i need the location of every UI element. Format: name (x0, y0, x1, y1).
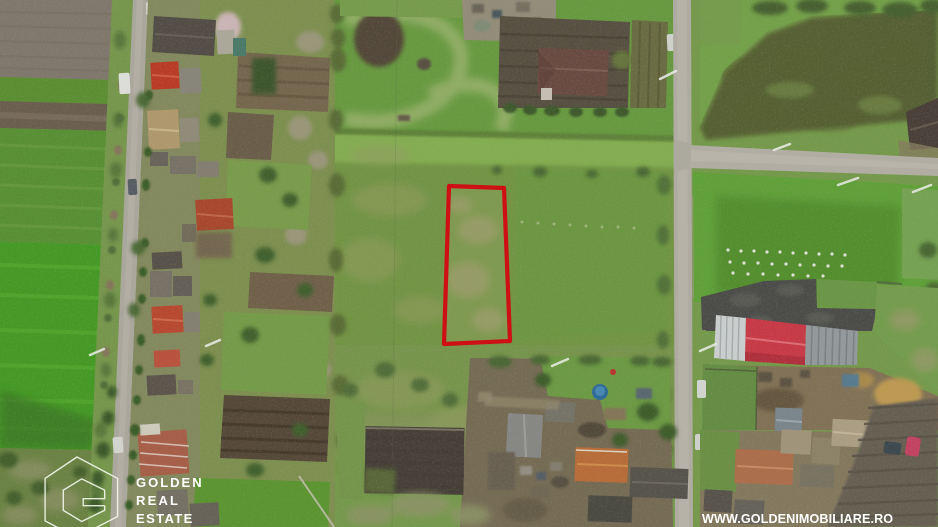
svg-text:REAL: REAL (136, 493, 180, 508)
svg-text:WWW.GOLDENIMOBILIARE.RO: WWW.GOLDENIMOBILIARE.RO (702, 512, 893, 526)
svg-text:GOLDEN: GOLDEN (136, 475, 204, 490)
svg-text:ESTATE: ESTATE (136, 511, 194, 526)
